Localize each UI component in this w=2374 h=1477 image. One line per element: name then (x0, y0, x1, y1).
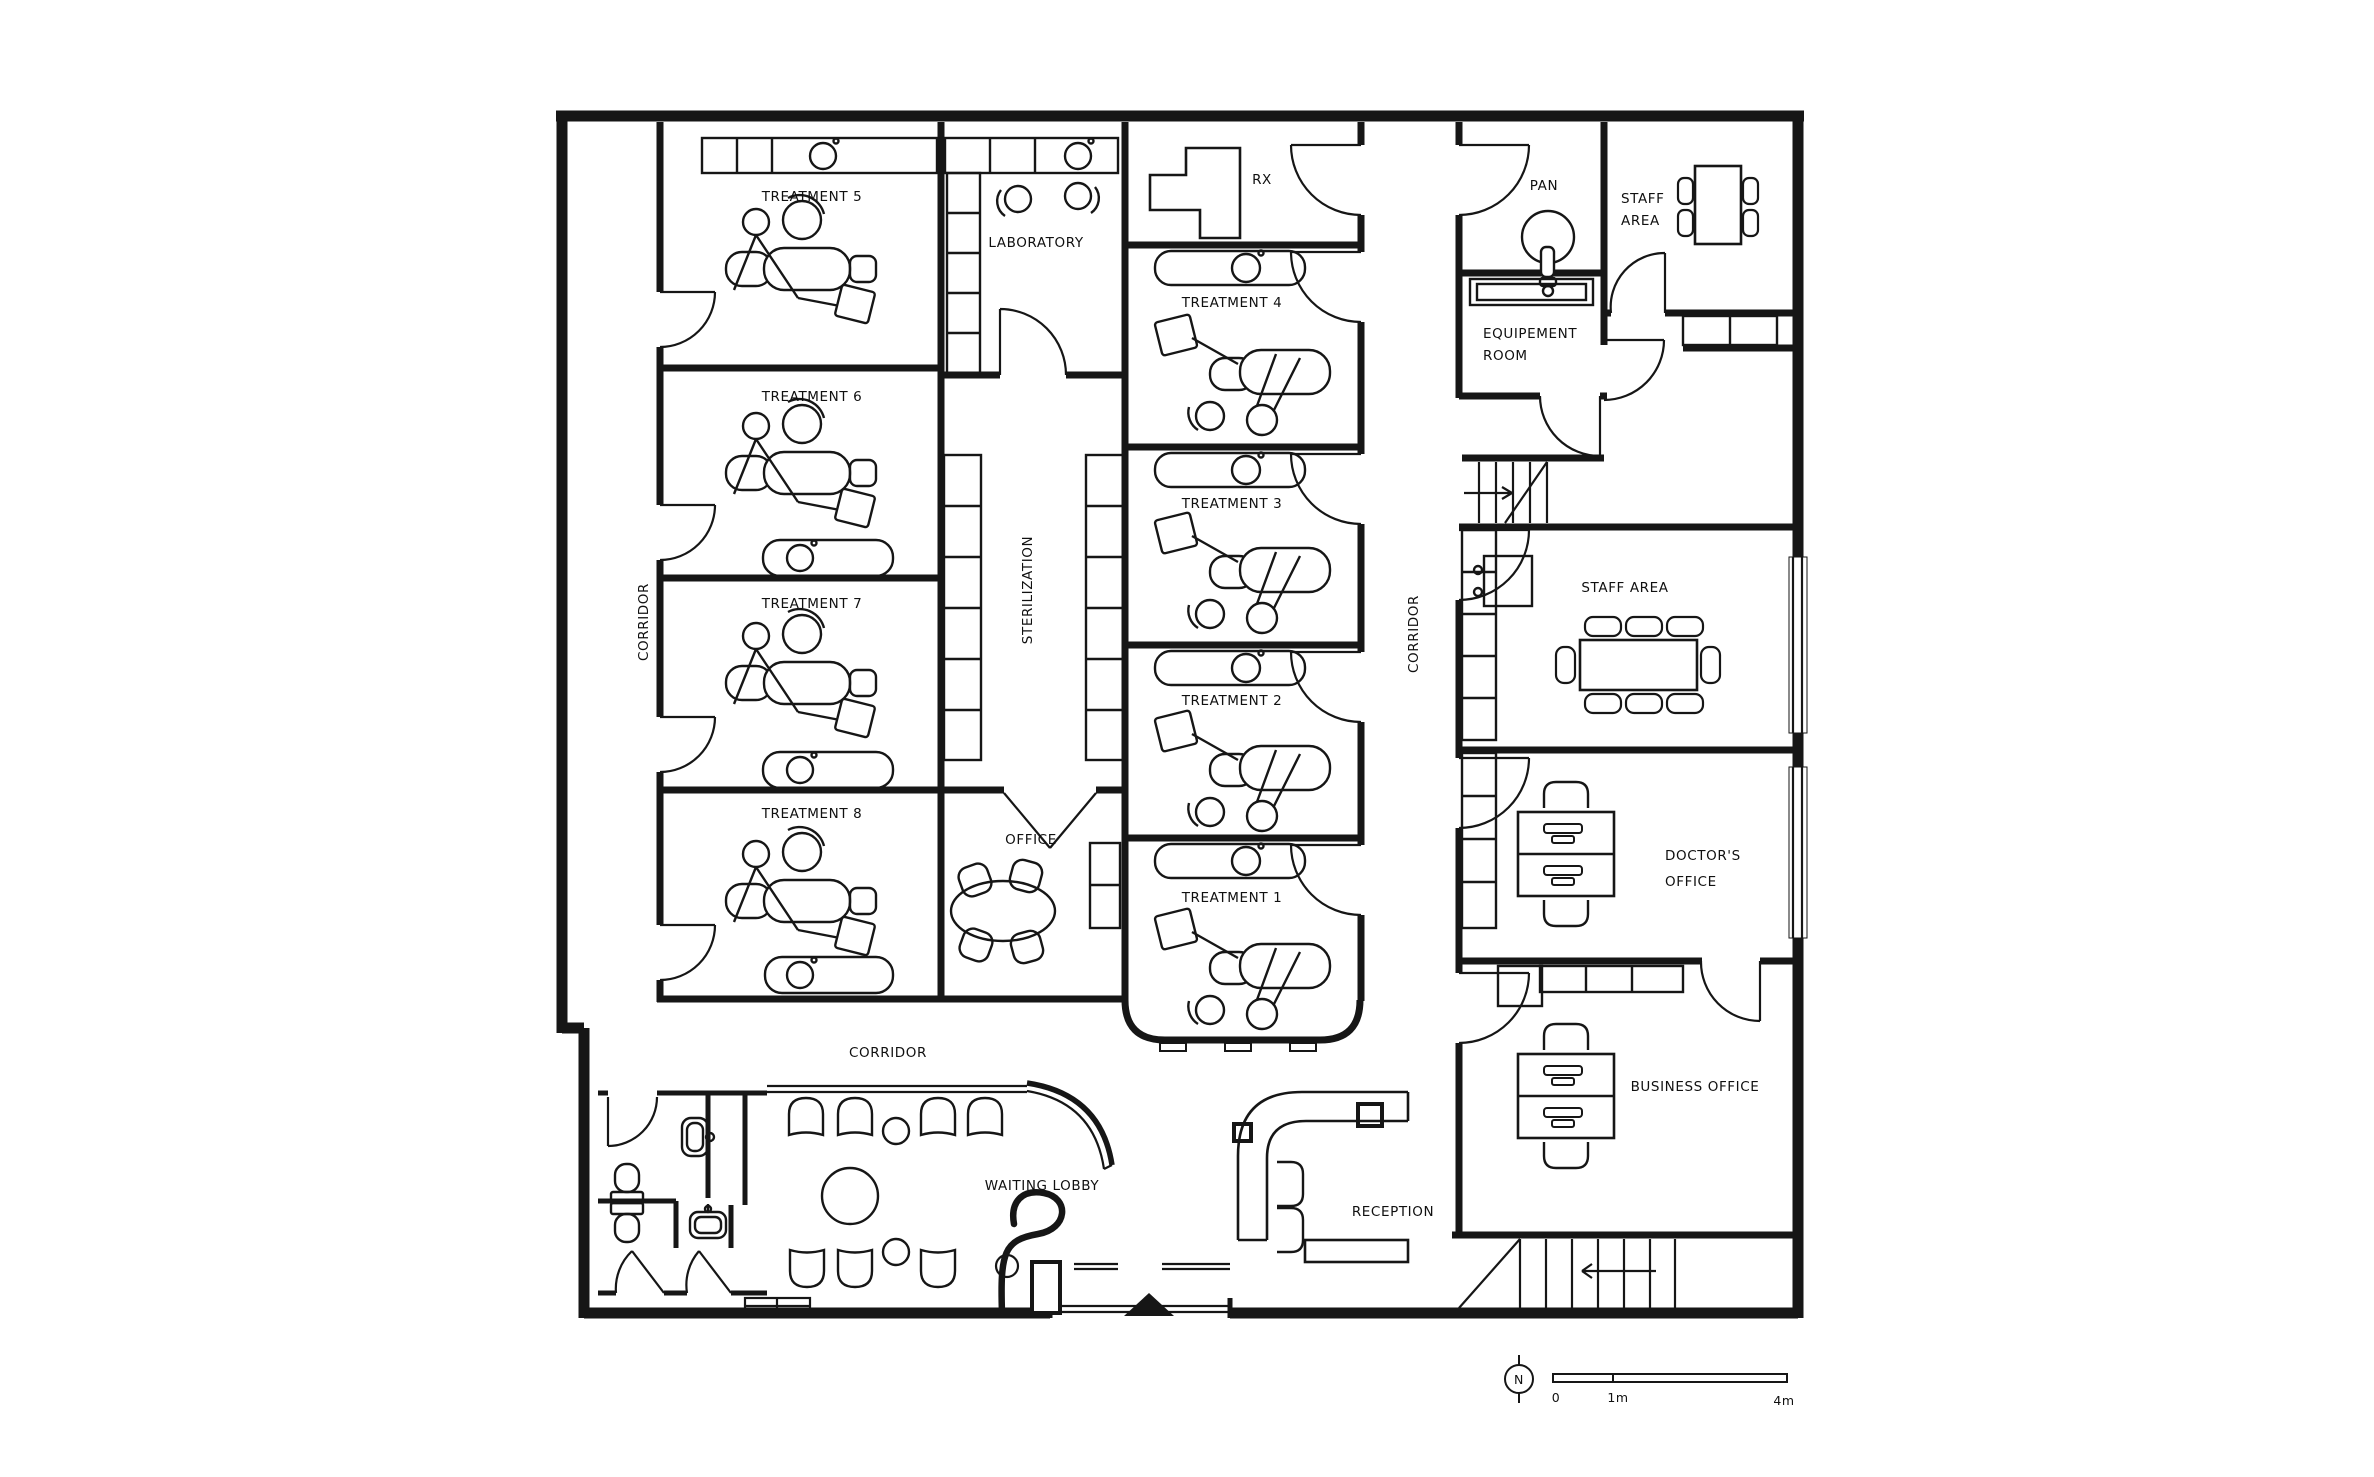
pan-label: PAN (1530, 178, 1558, 194)
treatment-3-counter (1155, 453, 1305, 488)
doctors-office-label-2: OFFICE (1665, 874, 1717, 890)
laboratory-stools (997, 183, 1099, 216)
corridor-left-label: CORRIDOR (636, 583, 652, 661)
floor-plan-canvas: N 0 1m 4m TREATMENT 5 TREATMENT 6 TREATM… (0, 0, 2374, 1477)
treatment-6-label: TREATMENT 6 (761, 389, 863, 405)
doctors-office-desk (1518, 782, 1614, 926)
reception-monitor-icon (1358, 1104, 1382, 1126)
office-furniture (951, 843, 1120, 965)
treatment-2-label: TREATMENT 2 (1181, 693, 1283, 709)
business-office-label: BUSINESS OFFICE (1631, 1079, 1760, 1095)
scale-one-label: 1m (1607, 1390, 1628, 1405)
dental-chair-icon (726, 827, 876, 956)
entry-post (1032, 1262, 1060, 1313)
waiting-lobby-label: WAITING LOBBY (985, 1178, 1100, 1194)
reception-desk (1234, 1092, 1408, 1262)
stairs-upper (1464, 462, 1547, 523)
dental-chair-icon (726, 195, 876, 324)
scale-zero-label: 0 (1552, 1390, 1561, 1405)
treatment-6-counter (763, 540, 893, 576)
entrance-marker-icon (1124, 1293, 1174, 1316)
equipement-room-label-2: ROOM (1483, 348, 1528, 364)
treatment-1-label: TREATMENT 1 (1181, 890, 1283, 906)
rx-label: RX (1252, 172, 1272, 188)
waiting-lobby-furniture (789, 1098, 1002, 1287)
staff-area-top-label-1: STAFF (1621, 191, 1665, 207)
scale-four-label: 4m (1773, 1393, 1794, 1408)
staff-area-label: STAFF AREA (1581, 580, 1668, 596)
dental-chair-icon (1154, 710, 1330, 831)
sterilization-label: STERILIZATION (1020, 536, 1036, 644)
treatment-1-counter (1155, 844, 1305, 879)
treatment-7-label: TREATMENT 7 (761, 596, 863, 612)
compass-north-label: N (1514, 1372, 1524, 1387)
office-label: OFFICE (1005, 832, 1057, 848)
treatment-2-counter (1155, 651, 1305, 686)
equipement-room-label-1: EQUIPEMENT (1483, 326, 1577, 342)
dental-chair-icon (1154, 908, 1330, 1029)
staff-area-conference-set (1556, 617, 1720, 713)
staff-area-top-label-2: AREA (1621, 213, 1660, 229)
treatment-1-rounded-wall (1125, 1000, 1360, 1040)
laboratory-label: LABORATORY (988, 235, 1084, 251)
treatment-5-label: TREATMENT 5 (761, 189, 863, 205)
treatment-4-counter (1155, 251, 1305, 286)
window-right-2 (1789, 767, 1807, 938)
treatment-3-label: TREATMENT 3 (1181, 496, 1283, 512)
corridor-bottom-label: CORRIDOR (849, 1045, 927, 1061)
treatment-7-counter (763, 752, 893, 788)
treatment-4-label: TREATMENT 4 (1181, 295, 1283, 311)
stairs-lower (1459, 1239, 1675, 1311)
dental-chair-icon (726, 609, 876, 738)
business-office-desk (1518, 1024, 1614, 1168)
reception-label: RECEPTION (1352, 1204, 1434, 1220)
doctors-office-label-1: DOCTOR'S (1665, 848, 1741, 864)
legend: N 0 1m 4m (1505, 1355, 1795, 1408)
treatment-8-label: TREATMENT 8 (761, 806, 863, 822)
corridor-right-label: CORRIDOR (1406, 595, 1422, 673)
scale-bar: 0 1m 4m (1552, 1374, 1795, 1408)
treatment-8-counter (765, 957, 893, 993)
floor-plan-page: N 0 1m 4m TREATMENT 5 TREATMENT 6 TREATM… (0, 0, 2374, 1477)
toilet-icon (615, 1164, 639, 1192)
dental-chair-icon (1154, 314, 1330, 435)
rx-machine-icon (1150, 148, 1240, 238)
curved-screen-wall (1027, 1083, 1112, 1165)
dental-chair-icon (726, 399, 876, 528)
dental-chair-icon (1154, 512, 1330, 633)
toilet-icon (615, 1214, 639, 1242)
window-right-1 (1789, 557, 1807, 733)
staff-area-top-furniture (1678, 166, 1758, 244)
